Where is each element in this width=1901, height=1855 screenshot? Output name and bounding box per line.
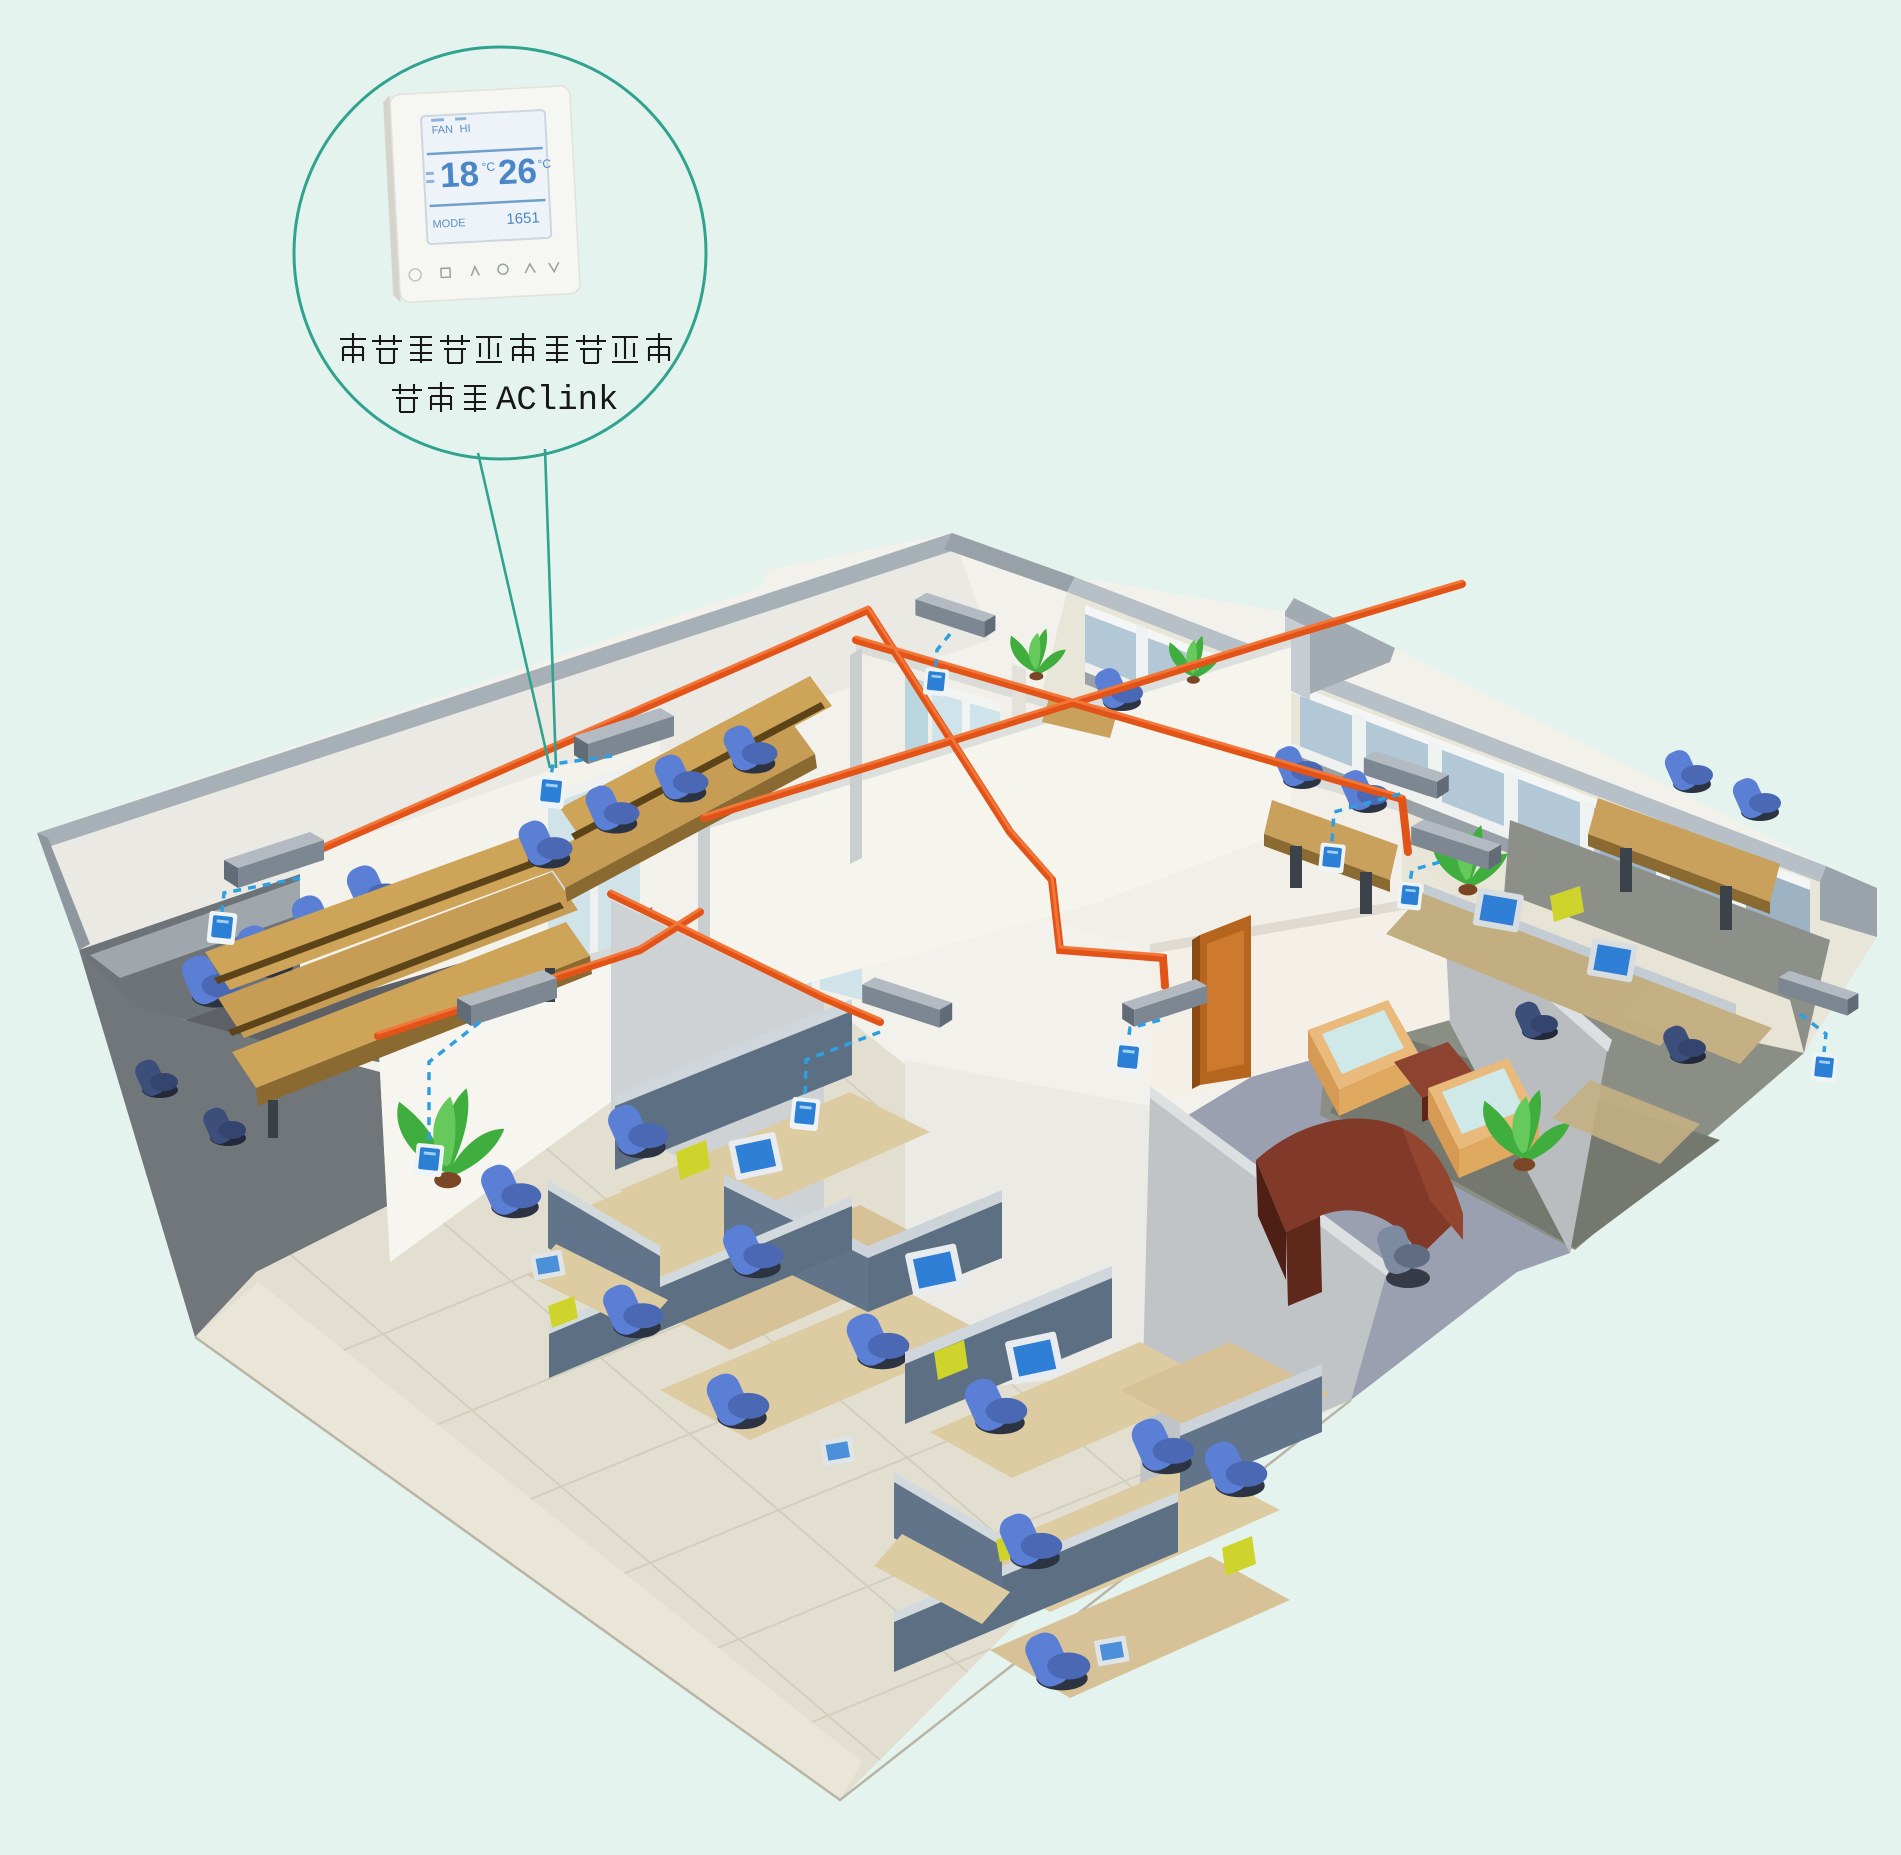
svg-text:AClink: AClink bbox=[496, 382, 618, 420]
svg-text:18: 18 bbox=[439, 154, 480, 195]
svg-text:°C: °C bbox=[537, 157, 552, 172]
svg-text:FAN: FAN bbox=[431, 124, 453, 137]
svg-text:HI: HI bbox=[459, 123, 471, 136]
svg-text:°C: °C bbox=[481, 160, 496, 175]
svg-text:26: 26 bbox=[497, 151, 538, 192]
svg-text:1651: 1651 bbox=[506, 209, 540, 228]
svg-text:MODE: MODE bbox=[432, 217, 466, 231]
